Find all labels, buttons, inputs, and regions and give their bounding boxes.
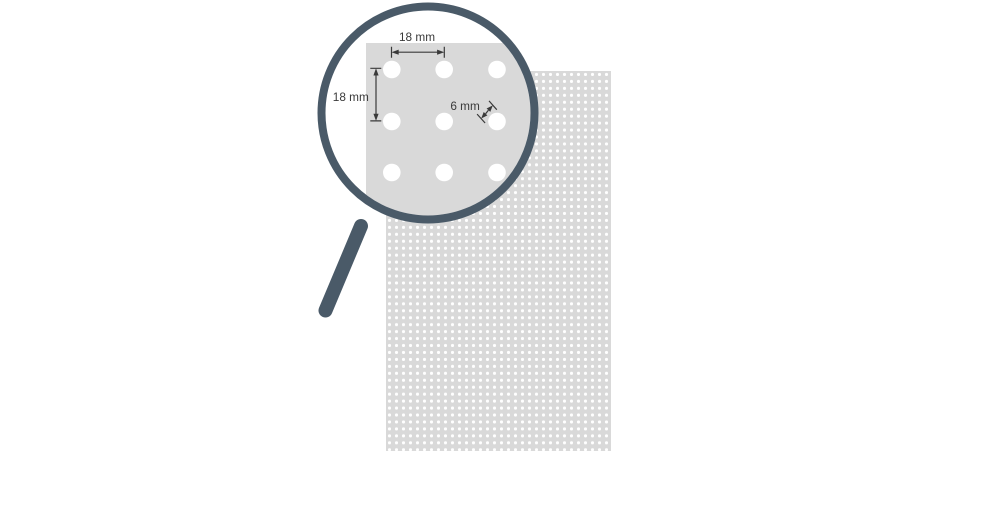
svg-text:6 mm: 6 mm	[450, 99, 480, 113]
svg-text:18 mm: 18 mm	[399, 30, 435, 44]
svg-text:18 mm: 18 mm	[333, 90, 369, 104]
